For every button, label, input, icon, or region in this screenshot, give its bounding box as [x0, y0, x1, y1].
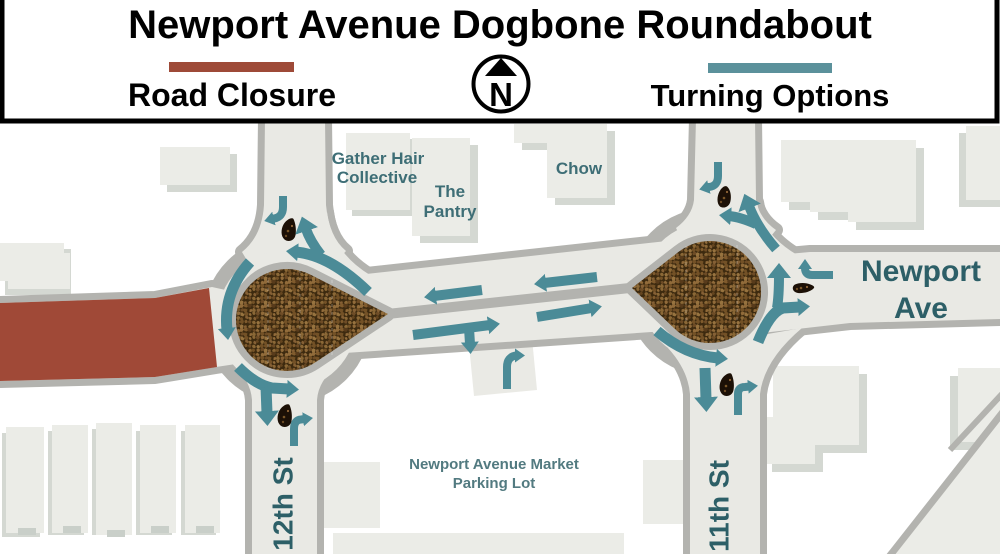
svg-text:Turning Options: Turning Options	[651, 78, 890, 113]
svg-text:Parking Lot: Parking Lot	[453, 475, 536, 492]
svg-text:Road Closure: Road Closure	[128, 77, 336, 113]
svg-text:Newport: Newport	[861, 255, 981, 288]
svg-text:Chow: Chow	[556, 159, 603, 178]
svg-text:Ave: Ave	[894, 292, 948, 325]
svg-text:Newport Avenue Dogbone Roundab: Newport Avenue Dogbone Roundabout	[128, 3, 872, 47]
svg-text:Collective: Collective	[337, 168, 417, 187]
svg-text:Gather Hair: Gather Hair	[332, 149, 425, 168]
svg-text:The: The	[435, 182, 465, 201]
svg-text:Pantry: Pantry	[424, 202, 477, 221]
svg-text:N: N	[489, 76, 513, 113]
svg-text:Newport Avenue Market: Newport Avenue Market	[409, 456, 579, 473]
svg-text:11th St: 11th St	[704, 460, 735, 552]
svg-text:12th St: 12th St	[268, 457, 299, 550]
